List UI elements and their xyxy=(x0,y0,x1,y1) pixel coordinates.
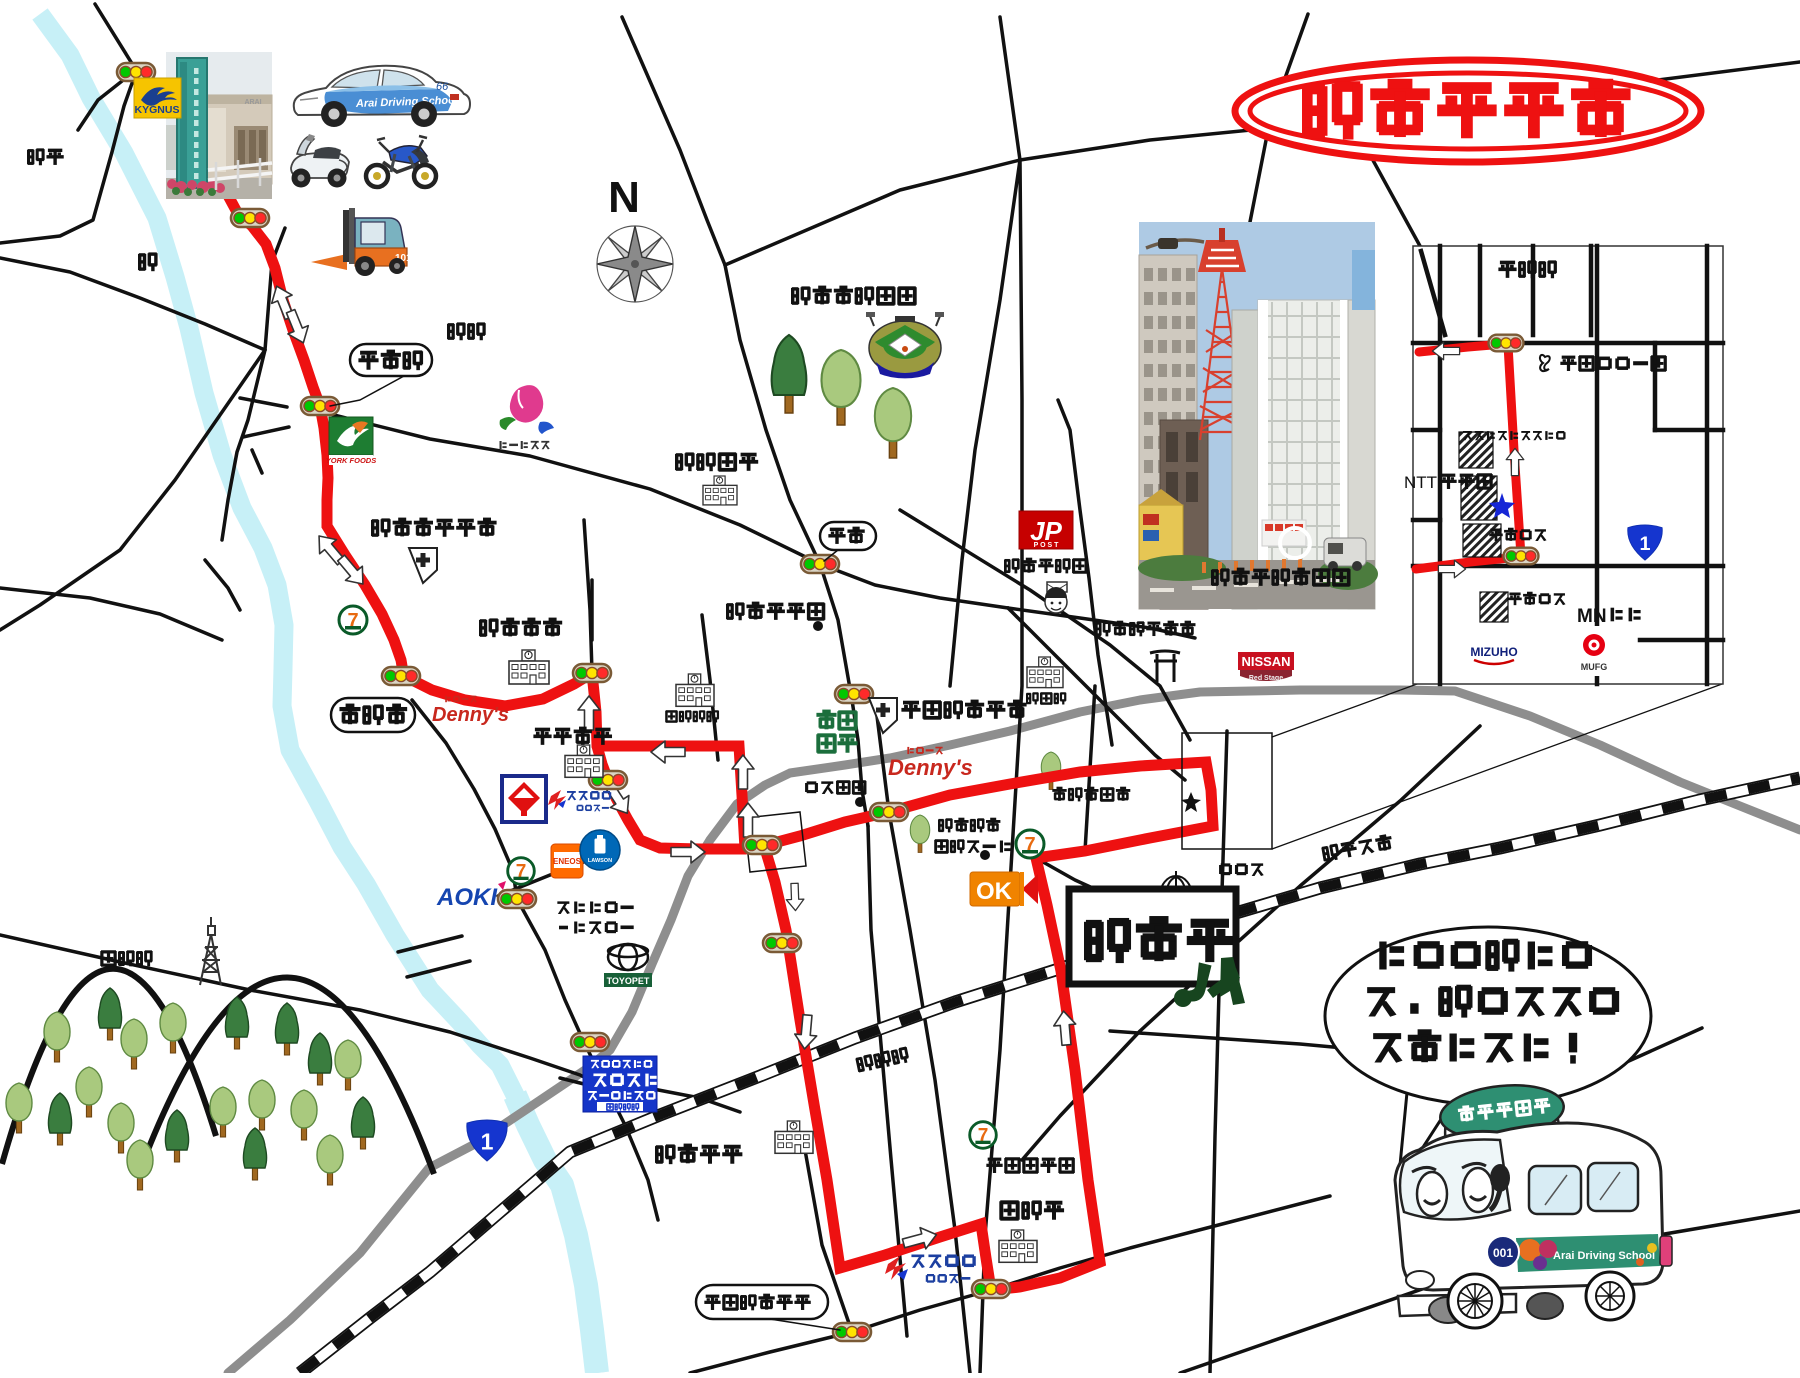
svg-text:MN: MN xyxy=(1577,606,1607,627)
svg-text:Denny's: Denny's xyxy=(432,704,509,726)
svg-text:NISSAN: NISSAN xyxy=(1241,654,1290,669)
svg-text:66: 66 xyxy=(436,81,449,93)
svg-text:NTT: NTT xyxy=(1404,473,1437,492)
svg-text:KYGNUS: KYGNUS xyxy=(135,104,180,116)
svg-text:OK: OK xyxy=(976,878,1013,905)
svg-text:Red Stage: Red Stage xyxy=(1249,675,1283,682)
svg-text:1: 1 xyxy=(481,1128,494,1154)
svg-text:LAWSON: LAWSON xyxy=(588,858,612,864)
svg-text:AOKI: AOKI xyxy=(436,884,498,911)
svg-text:ARAI: ARAI xyxy=(244,99,261,106)
svg-text:MIZUHO: MIZUHO xyxy=(1470,645,1517,659)
svg-text:YORK FOODS: YORK FOODS xyxy=(326,456,376,465)
svg-text:Denny's: Denny's xyxy=(888,755,973,780)
svg-text:001: 001 xyxy=(1493,1246,1513,1260)
svg-text:TOYOPET: TOYOPET xyxy=(607,976,650,986)
svg-text:N: N xyxy=(608,173,640,222)
svg-text:P O S T: P O S T xyxy=(1034,542,1059,549)
svg-text:MUFG: MUFG xyxy=(1581,662,1608,672)
svg-text:ENEOS: ENEOS xyxy=(553,857,582,866)
svg-text:1: 1 xyxy=(1639,533,1650,555)
